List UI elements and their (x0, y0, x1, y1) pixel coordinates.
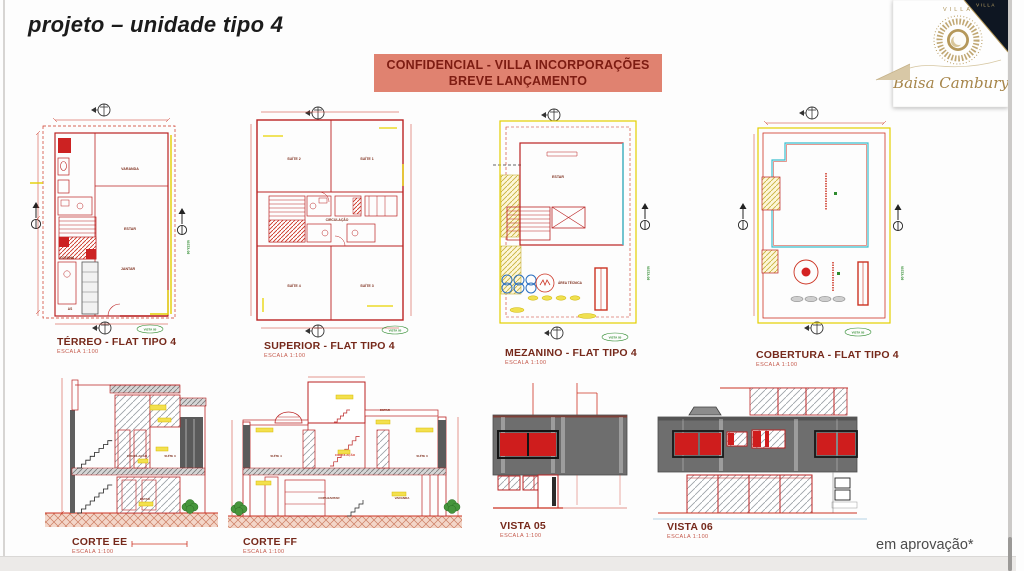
corte-ff-water-tank (275, 412, 302, 423)
caption-superior: SUPERIOR - FLAT TIPO 4 ESCALA 1:100 (264, 340, 395, 359)
terreo-room-varanda: VARANDA (121, 167, 139, 171)
mezanino-room-estar: ESTAR (552, 175, 564, 179)
logo-corner-brand: VILLA (976, 3, 996, 8)
mezanino-room-area-tecnica: ÁREA TÉCNICA (558, 280, 583, 285)
superior-room-suite3: SUÍTE 3 (360, 283, 374, 288)
terreo-room-cozinha: COZINHA (60, 256, 75, 260)
page-edge (3, 0, 5, 571)
corte-ee-label-circulacao: CIRCULAÇÃO (127, 453, 148, 458)
terreo-yellow-marks (30, 135, 171, 314)
superior-room-suite4: SUÍTE 4 (287, 283, 301, 288)
terreo-dimension-lines (36, 118, 170, 324)
plan-scale-terreo: ESCALA 1:100 (57, 349, 176, 355)
vista06-upper-glazing (750, 388, 847, 415)
confidential-banner: CONFIDENCIAL - VILLA INCORPORAÇÕES BREVE… (374, 54, 662, 92)
corte-ee-stairs (77, 441, 112, 513)
superior-view-marker: VISTA 05 (382, 326, 408, 334)
mezanino-view-marker-bottom: VISTA 05 (602, 333, 628, 341)
section-title-corte-ee: CORTE EE (72, 536, 127, 548)
plan-title-terreo: TÉRREO - FLAT TIPO 4 (57, 336, 176, 348)
plan-mezanino-drawing: ESTAR ÁREA TÉCNICA VISTA 06 VISTA 05 (487, 106, 657, 350)
caption-vista05: VISTA 05 ESCALA 1:100 (500, 520, 546, 539)
vista06-roof-vent (689, 407, 721, 415)
vista05-faint-lines (577, 475, 620, 505)
vista06-side-windows (832, 472, 857, 513)
corte-ff-label-varanda: VARANDA (395, 496, 411, 500)
terreo-room-as: AS (68, 307, 72, 311)
terreo-stairs (59, 217, 96, 259)
terreo-kitchen-fixtures (58, 262, 98, 314)
section-title-corte-ff: CORTE FF (243, 536, 297, 548)
mezanino-view-marker-side: VISTA 06 (646, 266, 650, 280)
caption-cobertura: COBERTURA - FLAT TIPO 4 ESCALA 1:100 (756, 349, 899, 368)
cobertura-exhaust-symbol (794, 260, 818, 284)
section-scale-corte-ee: ESCALA 1:100 (72, 549, 127, 555)
superior-room-circulacao: CIRCULAÇÃO (326, 217, 349, 222)
corte-ff-label-estar: ESTAR (380, 408, 391, 412)
corte-ee-label-suite3: SUÍTE 3 (164, 453, 176, 458)
page-title: projeto – unidade tipo 4 (28, 12, 283, 38)
logo-brand-text: VILLA (943, 7, 973, 13)
corte-ff-label-suite4: SUÍTE 4 (270, 453, 282, 458)
corte-ff-label-circulacao: CIRCULAÇÃO (335, 452, 356, 457)
cobertura-vents (791, 296, 845, 301)
cobertura-view-marker-side: VISTA 06 (900, 266, 904, 280)
plan-superior-drawing: SUÍTE 2 SUÍTE 1 CIRCULAÇÃO SUÍTE 4 SUÍTE… (249, 102, 417, 338)
superior-room-suite2: SUÍTE 2 (287, 156, 301, 161)
banner-line2: BREVE LANÇAMENTO (374, 73, 662, 90)
mezanino-yellow-marks (510, 296, 596, 319)
mezanino-walls (520, 143, 623, 245)
section-scale-corte-ff: ESCALA 1:100 (243, 549, 297, 555)
section-corte-ee-drawing: CIRCULAÇÃO SUÍTE 3 ESTAR (42, 374, 222, 532)
svg-text:VISTA 05: VISTA 05 (609, 335, 622, 339)
vista05-red-windows (498, 431, 558, 458)
cobertura-dimension-lines (754, 121, 886, 316)
plan-terreo-drawing: VARANDA ESTAR JANTAR COZINHA AS VISTA 06… (30, 100, 192, 336)
caption-corte-ff: CORTE FF ESCALA 1:100 (243, 536, 297, 555)
approval-note: em aprovação* (876, 537, 974, 553)
terreo-room-estar: ESTAR (124, 227, 136, 231)
svg-text:VISTA 05: VISTA 05 (389, 328, 402, 332)
corte-ff-label-suite3: SUÍTE 3 (416, 453, 428, 458)
plan-title-mezanino: MEZANINO - FLAT TIPO 4 (505, 347, 637, 359)
banner-line1: CONFIDENCIAL - VILLA INCORPORAÇÕES (374, 57, 662, 74)
caption-corte-ee: CORTE EE ESCALA 1:100 (72, 536, 127, 555)
corte-ee-structure (70, 380, 206, 513)
superior-room-suite1: SUÍTE 1 (360, 156, 374, 161)
vista06-center-windows (727, 430, 785, 448)
elevation-scale-vista06: ESCALA 1:100 (667, 534, 713, 540)
vista05-door (538, 475, 558, 508)
elevation-vista06-drawing (653, 383, 867, 523)
slide: projeto – unidade tipo 4 CONFIDENCIAL - … (0, 0, 1024, 571)
elevation-scale-vista05: ESCALA 1:100 (500, 533, 546, 539)
elevation-vista05-drawing (483, 383, 643, 517)
plan-scale-superior: ESCALA 1:100 (264, 353, 395, 359)
elevation-title-vista06: VISTA 06 (667, 521, 713, 533)
vista06-red-windows-right (815, 431, 857, 457)
page-bottom-edge (0, 556, 1016, 571)
vista06-lower-glazing (687, 475, 812, 513)
corte-ee-label-estar: ESTAR (140, 497, 151, 501)
brand-logo: VILLA VILLA Baisa Cambury (875, 0, 1010, 112)
terreo-view-marker-bottom: VISTA 05 (137, 325, 163, 333)
plan-title-cobertura: COBERTURA - FLAT TIPO 4 (756, 349, 899, 361)
caption-vista06: VISTA 06 ESCALA 1:100 (667, 521, 713, 540)
scrollbar-thumb[interactable] (1008, 537, 1012, 571)
scrollbar-track[interactable] (1008, 0, 1012, 571)
terreo-walls (55, 133, 168, 316)
ground-hatch (228, 516, 462, 528)
mini-dimension-line (131, 539, 189, 549)
mezanino-pump-symbol (536, 274, 554, 292)
caption-mezanino: MEZANINO - FLAT TIPO 4 ESCALA 1:100 (505, 347, 637, 366)
plan-title-superior: SUPERIOR - FLAT TIPO 4 (264, 340, 395, 352)
cobertura-roof-outline (772, 143, 868, 247)
superior-bathrooms (307, 196, 397, 242)
svg-text:VISTA 05: VISTA 05 (144, 327, 157, 331)
svg-text:VISTA 05: VISTA 05 (852, 330, 865, 334)
plan-scale-mezanino: ESCALA 1:100 (505, 360, 637, 366)
caption-terreo: TÉRREO - FLAT TIPO 4 ESCALA 1:100 (57, 336, 176, 355)
cobertura-view-marker-bottom: VISTA 05 (845, 328, 871, 336)
ground-hatch (45, 513, 218, 527)
vista05-frame-lines (533, 383, 597, 415)
plan-scale-cobertura: ESCALA 1:100 (756, 362, 899, 368)
superior-stairs (269, 196, 305, 242)
section-corte-ff-drawing: ESTAR SUÍTE 4 CIRCULAÇÃO SUÍTE 3 COPA/JA… (226, 372, 470, 532)
vista06-red-windows-left (673, 431, 723, 457)
elevation-title-vista05: VISTA 05 (500, 520, 546, 532)
terreo-room-jantar: JANTAR (121, 267, 136, 271)
terreo-view-marker-side: VISTA 06 (186, 240, 190, 254)
plan-cobertura-drawing: VISTA 06 VISTA 05 (736, 106, 926, 346)
corte-ff-label-copa-jantar: COPA/JANTAR (318, 496, 340, 500)
corte-ff-stairs (330, 410, 363, 516)
